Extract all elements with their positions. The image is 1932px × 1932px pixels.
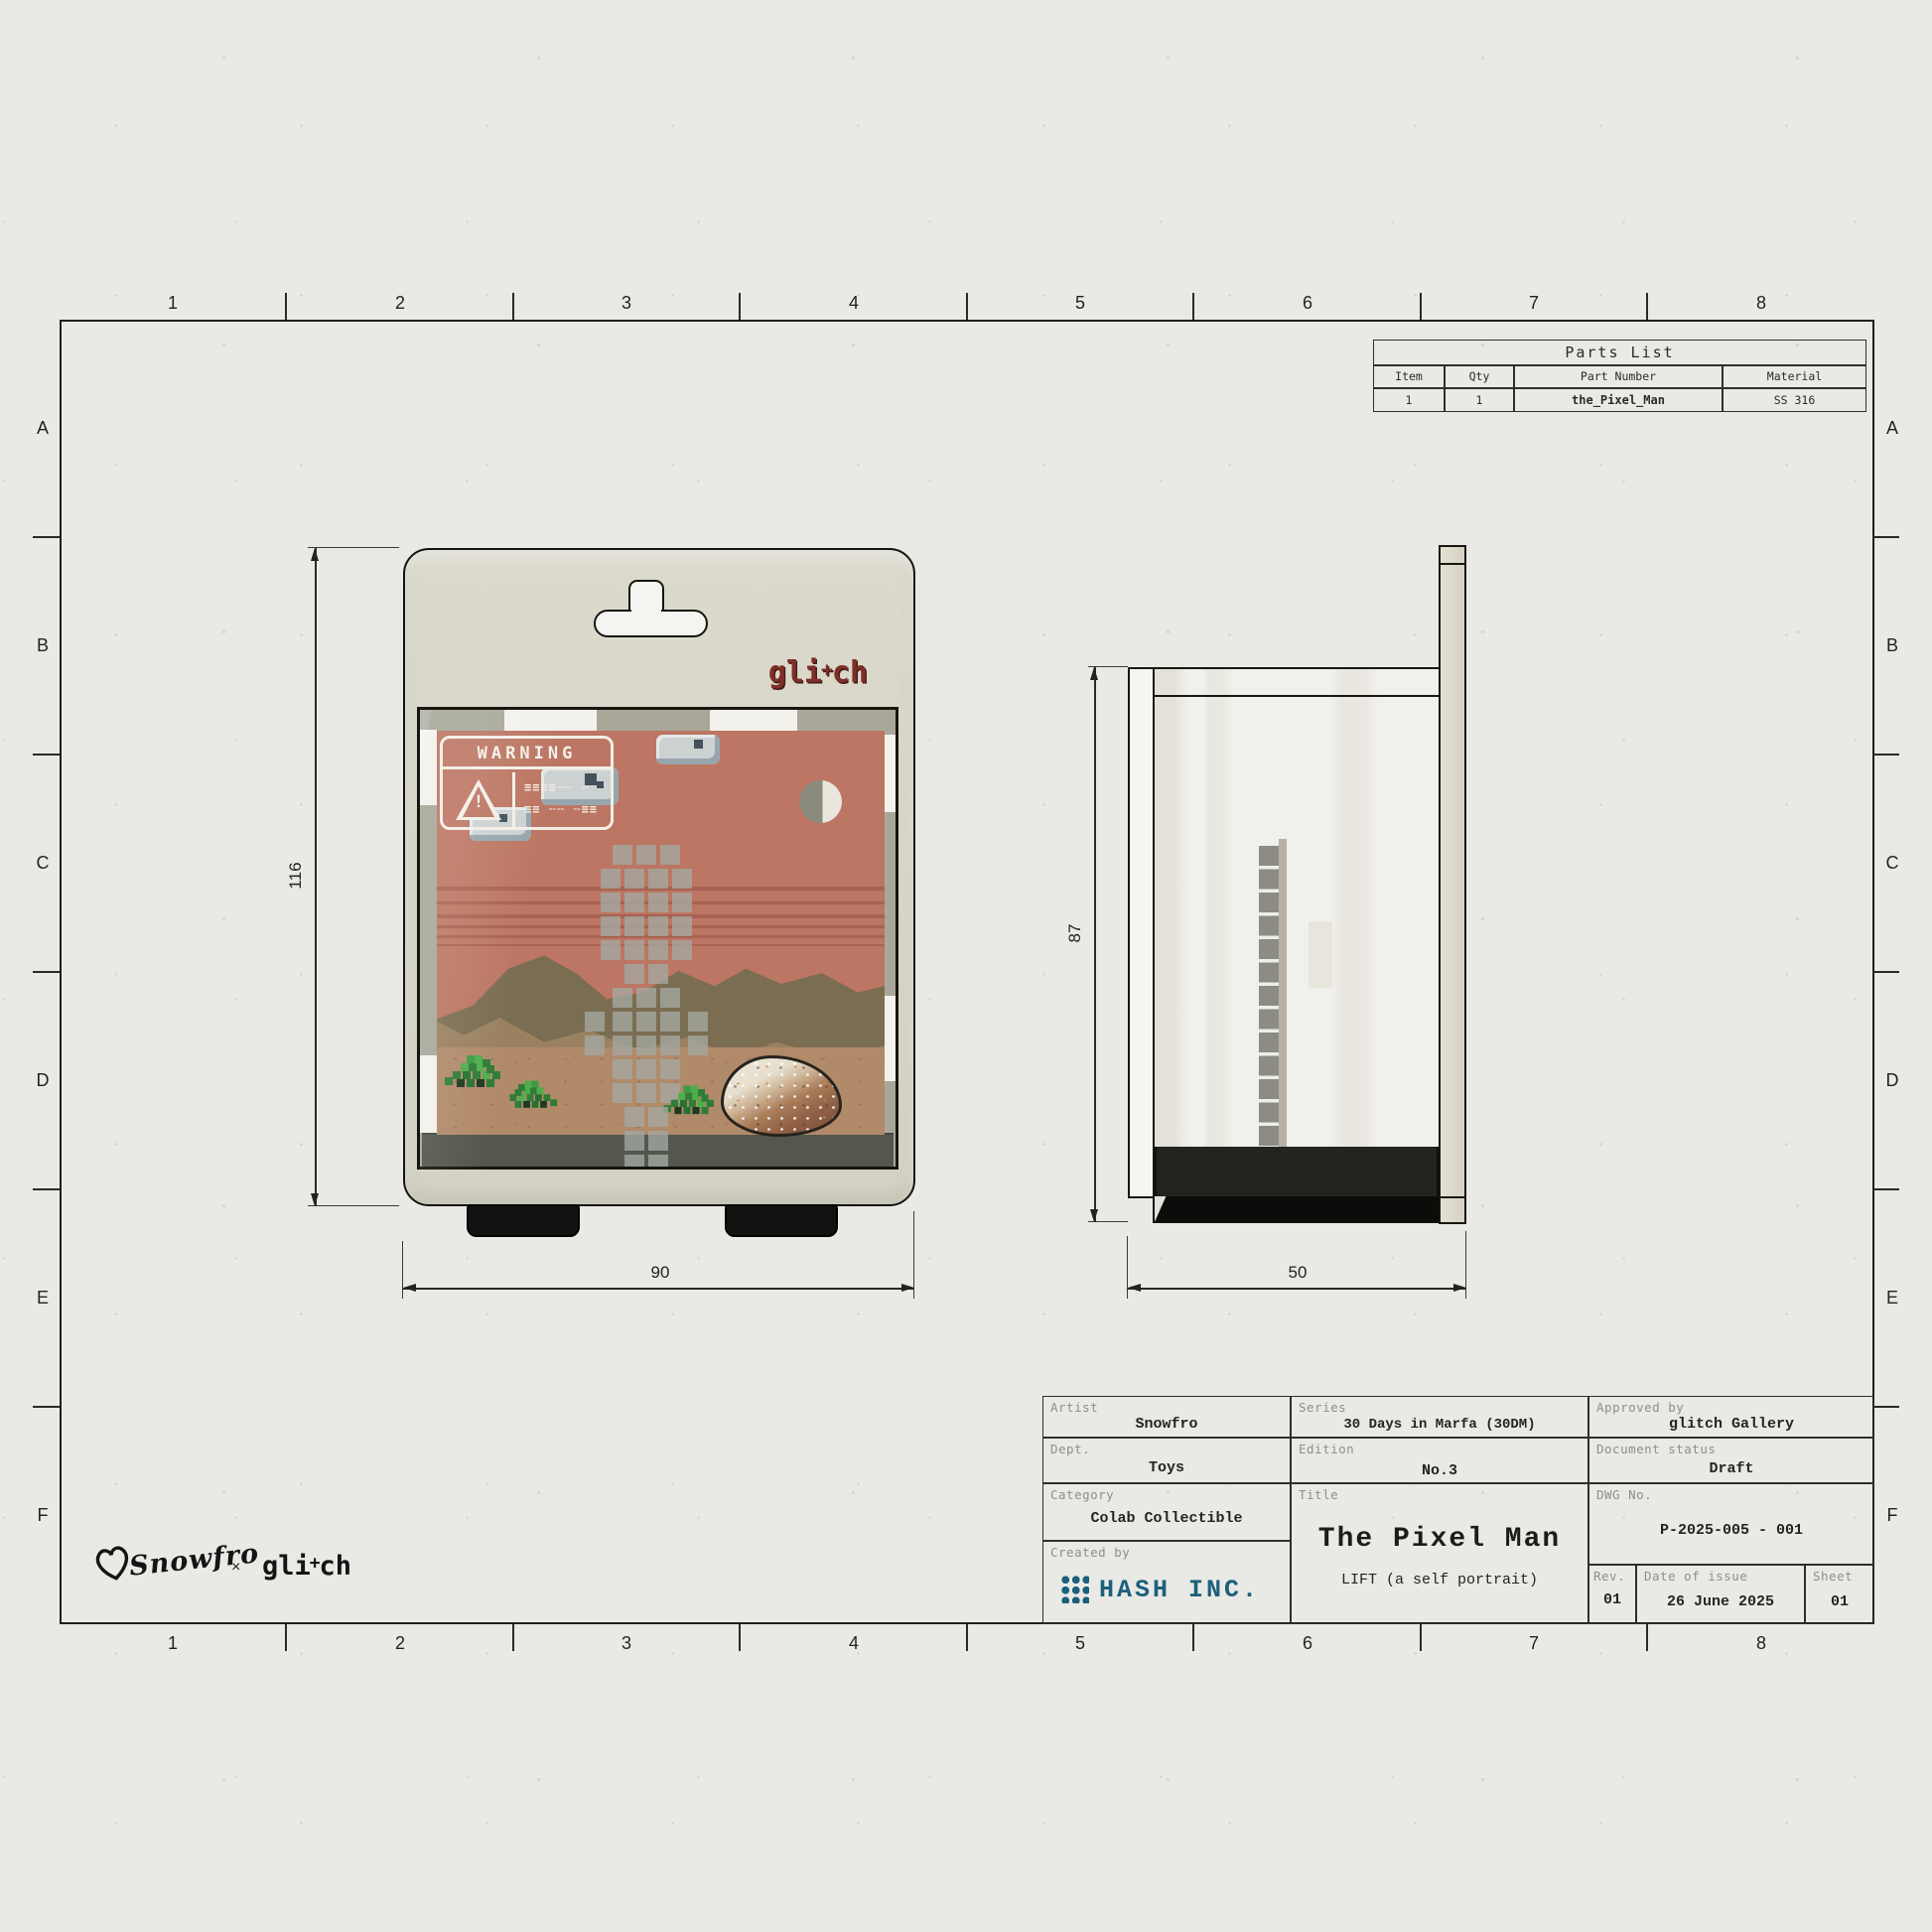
side-view — [1128, 545, 1467, 1230]
dimension-value: 116 — [286, 846, 306, 905]
arrowhead — [1453, 1284, 1466, 1292]
col-header-material: Material — [1724, 369, 1865, 383]
extension-line — [308, 547, 399, 548]
hang-slot-fill — [597, 613, 705, 634]
side-flange — [1128, 667, 1155, 1198]
edition-value: No.3 — [1292, 1462, 1587, 1479]
pixel-man-legs — [624, 1107, 672, 1167]
grid-tick — [1872, 1406, 1899, 1408]
parts-list-cell-material: SS 316 — [1723, 388, 1866, 412]
dimension-line — [403, 1288, 914, 1290]
approved-by-label: Approved by — [1596, 1400, 1684, 1415]
grid-tick — [33, 1406, 60, 1408]
grid-row-label: A — [1878, 415, 1906, 441]
date-label: Date of issue — [1644, 1569, 1747, 1584]
cell-part-number: the_Pixel_Man — [1515, 393, 1722, 407]
arrowhead — [901, 1284, 914, 1292]
dwg-no-label: DWG No. — [1596, 1487, 1652, 1502]
arrowhead — [1090, 667, 1098, 680]
rev-label: Rev. — [1593, 1569, 1625, 1584]
sheet-label: Sheet — [1813, 1569, 1853, 1584]
grid-row-label: F — [29, 1502, 57, 1528]
warning-label: WARNING ! ≡≡≡≡╌╌ ╌ ≡≡ ╌╌ ╌≡≡ — [440, 736, 614, 830]
grid-tick — [1872, 536, 1899, 538]
dimension-line — [315, 548, 317, 1206]
warning-glitch-text: ≡≡ ╌╌ ╌≡≡ — [524, 802, 598, 816]
titleblock-date-cell: Date of issue 26 June 2025 — [1636, 1565, 1805, 1624]
grid-tick — [33, 971, 60, 973]
titleblock-series-cell: Series 30 Days in Marfa (30DM) — [1291, 1396, 1588, 1438]
brand-text: ch — [832, 655, 868, 690]
artist-value: Snowfro — [1043, 1416, 1290, 1433]
dwg-no-value: P-2025-005 - 001 — [1589, 1522, 1873, 1539]
grid-tick — [739, 1624, 741, 1651]
grid-col-label: 1 — [153, 1630, 193, 1656]
warning-divider — [512, 772, 515, 827]
grid-tick — [285, 293, 287, 320]
grid-col-label: 4 — [834, 1630, 874, 1656]
grid-row-label: E — [1878, 1285, 1906, 1311]
col-header-part-number: Part Number — [1515, 369, 1722, 383]
titleblock-created-by-cell: Created by HASH INC. — [1042, 1541, 1291, 1624]
hash-inc-dots-icon — [1059, 1574, 1089, 1603]
side-pixel-man-column — [1259, 846, 1279, 1149]
grid-row-label: E — [29, 1285, 57, 1311]
doc-status-value: Draft — [1589, 1460, 1873, 1477]
desert-plant — [467, 1055, 475, 1063]
titleblock-category-cell: Category Colab Collectible — [1042, 1483, 1291, 1541]
front-view: gli+ch — [403, 548, 915, 1263]
parts-list-title-cell: Parts List — [1373, 340, 1866, 365]
grid-col-label: 6 — [1288, 290, 1327, 316]
grid-col-label: 5 — [1060, 1630, 1100, 1656]
series-label: Series — [1299, 1400, 1346, 1415]
cell-item: 1 — [1374, 393, 1444, 407]
arrowhead — [1128, 1284, 1141, 1292]
grid-col-label: 1 — [153, 290, 193, 316]
drawing-sheet: 1 2 3 4 5 6 7 8 1 2 3 4 5 6 7 8 A B C D … — [0, 0, 1932, 1932]
grid-col-label: 8 — [1741, 1630, 1781, 1656]
grid-tick — [285, 1624, 287, 1651]
series-value: 30 Days in Marfa (30DM) — [1292, 1417, 1587, 1433]
parts-list-header-qty: Qty — [1445, 365, 1514, 388]
cloud — [656, 735, 720, 764]
grid-col-label: 3 — [607, 1630, 646, 1656]
dimension-value: 90 — [625, 1263, 695, 1283]
parts-list-cell-part-number: the_Pixel_Man — [1514, 388, 1723, 412]
titleblock-dwg-no-cell: DWG No. P-2025-005 - 001 — [1588, 1483, 1874, 1565]
hash-inc-logo: HASH INC. — [1099, 1576, 1260, 1604]
titleblock-rev-cell: Rev. 01 — [1588, 1565, 1636, 1624]
arrowhead — [311, 1193, 319, 1206]
titleblock-dept-cell: Dept. Toys — [1042, 1438, 1291, 1483]
created-by-label: Created by — [1050, 1545, 1130, 1560]
hang-slot-fill — [631, 584, 661, 616]
col-header-item: Item — [1374, 369, 1444, 383]
grid-tick — [33, 1188, 60, 1190]
parts-list-header-material: Material — [1723, 365, 1866, 388]
titleblock-approved-by-cell: Approved by glitch Gallery — [1588, 1396, 1874, 1438]
edition-label: Edition — [1299, 1442, 1354, 1456]
cell-qty: 1 — [1446, 393, 1513, 407]
parts-list-header-part-number: Part Number — [1514, 365, 1723, 388]
side-base-dark — [1155, 1147, 1439, 1196]
col-header-qty: Qty — [1446, 369, 1513, 383]
grid-tick — [33, 754, 60, 756]
dimension-line — [1094, 667, 1096, 1222]
glitch-footer-logo: gli+ch — [262, 1551, 351, 1582]
pixel-man-neck — [624, 964, 672, 988]
side-card-cap-line — [1440, 1196, 1465, 1198]
desert-plant — [683, 1085, 690, 1092]
grid-tick — [1646, 293, 1648, 320]
artwork-panel: WARNING ! ≡≡≡≡╌╌ ╌ ≡≡ ╌╌ ╌≡≡ — [417, 707, 898, 1170]
backing-tab — [420, 730, 437, 805]
parts-list-title: Parts List — [1374, 344, 1865, 361]
parts-list-cell-item: 1 — [1373, 388, 1445, 412]
side-backing-card — [1439, 545, 1466, 1224]
grid-col-label: 8 — [1741, 290, 1781, 316]
warning-glitch-text: ≡≡≡≡╌╌ ╌ — [524, 780, 590, 794]
package-foot — [725, 1204, 838, 1237]
backing-tab — [420, 1055, 437, 1133]
grid-tick — [1646, 1624, 1648, 1651]
sheet-value: 01 — [1806, 1593, 1873, 1610]
collab-x: × — [231, 1559, 240, 1577]
drawing-subtitle: LIFT (a self portrait) — [1292, 1572, 1587, 1588]
grid-tick — [512, 1624, 514, 1651]
grid-col-label: 5 — [1060, 290, 1100, 316]
brand-text: ch — [320, 1551, 352, 1582]
titleblock-edition-cell: Edition No.3 — [1291, 1438, 1588, 1483]
side-base-black — [1155, 1196, 1439, 1222]
pixel-man-head-top — [613, 845, 684, 869]
grid-row-label: C — [1878, 850, 1906, 876]
grid-row-label: B — [1878, 632, 1906, 658]
grid-col-label: 6 — [1288, 1630, 1327, 1656]
dept-value: Toys — [1043, 1459, 1290, 1476]
grid-tick — [966, 1624, 968, 1651]
grid-tick — [33, 536, 60, 538]
arrowhead — [311, 548, 319, 561]
warning-exclamation: ! — [456, 792, 501, 812]
grid-row-label: B — [29, 632, 57, 658]
grid-col-label: 3 — [607, 290, 646, 316]
title-label: Title — [1299, 1487, 1338, 1502]
side-flange-line — [1155, 695, 1439, 697]
grid-row-label: F — [1878, 1502, 1906, 1528]
grid-tick — [1872, 971, 1899, 973]
arrowhead — [1090, 1209, 1098, 1222]
grid-col-label: 2 — [380, 1630, 420, 1656]
doc-status-label: Document status — [1596, 1442, 1716, 1456]
grid-row-label: A — [29, 415, 57, 441]
side-pixel-man-edge — [1279, 839, 1287, 1149]
package-foot — [467, 1204, 580, 1237]
dept-label: Dept. — [1050, 1442, 1090, 1456]
grid-row-label: D — [1878, 1067, 1906, 1093]
pixel-man-arm-right — [688, 1012, 712, 1059]
grid-tick — [739, 293, 741, 320]
grid-tick — [512, 293, 514, 320]
titleblock-doc-status-cell: Document status Draft — [1588, 1438, 1874, 1483]
brand-text: gli — [768, 655, 822, 690]
grid-tick — [1192, 1624, 1194, 1651]
grid-col-label: 7 — [1514, 290, 1554, 316]
titleblock-title-cell: Title The Pixel Man LIFT (a self portrai… — [1291, 1483, 1588, 1624]
grid-tick — [1872, 754, 1899, 756]
brand-text: gli — [262, 1551, 311, 1582]
grid-row-label: C — [29, 850, 57, 876]
grid-col-label: 2 — [380, 290, 420, 316]
grid-tick — [1420, 1624, 1422, 1651]
dimension-line — [1128, 1288, 1466, 1290]
moon — [799, 780, 842, 823]
backing-tab — [710, 710, 797, 731]
grid-tick — [1872, 1188, 1899, 1190]
date-value: 26 June 2025 — [1637, 1593, 1804, 1610]
glitch-brand-logo: gli+ch — [768, 655, 868, 690]
pixel-art-scene: WARNING ! ≡≡≡≡╌╌ ╌ ≡≡ ╌╌ ╌≡≡ — [437, 731, 885, 1135]
cell-material: SS 316 — [1724, 393, 1865, 407]
pixel-man-torso — [613, 988, 684, 1107]
category-value: Colab Collectible — [1043, 1510, 1290, 1527]
pixel-man-head — [601, 869, 696, 964]
grid-row-label: D — [29, 1067, 57, 1093]
category-label: Category — [1050, 1487, 1114, 1502]
extension-line — [308, 1205, 399, 1206]
titleblock-sheet-cell: Sheet 01 — [1805, 1565, 1874, 1624]
artist-label: Artist — [1050, 1400, 1098, 1415]
side-rock-ghost — [1309, 921, 1332, 988]
side-blister-body — [1153, 667, 1441, 1223]
parts-list-cell-qty: 1 — [1445, 388, 1514, 412]
drawing-title: The Pixel Man — [1292, 1524, 1587, 1555]
side-card-cap-line — [1440, 563, 1465, 565]
pixel-man-arm-left — [585, 1012, 609, 1059]
grid-tick — [1420, 293, 1422, 320]
arrowhead — [403, 1284, 416, 1292]
warning-title: WARNING — [443, 739, 611, 769]
dimension-value: 50 — [1263, 1263, 1332, 1283]
rev-value: 01 — [1589, 1591, 1635, 1608]
grid-col-label: 4 — [834, 290, 874, 316]
grid-tick — [966, 293, 968, 320]
grid-col-label: 7 — [1514, 1630, 1554, 1656]
dimension-value: 87 — [1065, 903, 1085, 963]
titleblock-artist-cell: Artist Snowfro — [1042, 1396, 1291, 1438]
desert-plant — [532, 1081, 539, 1088]
approved-by-value: glitch Gallery — [1589, 1416, 1873, 1433]
warning-triangle-icon: ! — [456, 779, 501, 820]
backing-tab — [504, 710, 597, 731]
grid-tick — [1192, 293, 1194, 320]
parts-list-header-item: Item — [1373, 365, 1445, 388]
